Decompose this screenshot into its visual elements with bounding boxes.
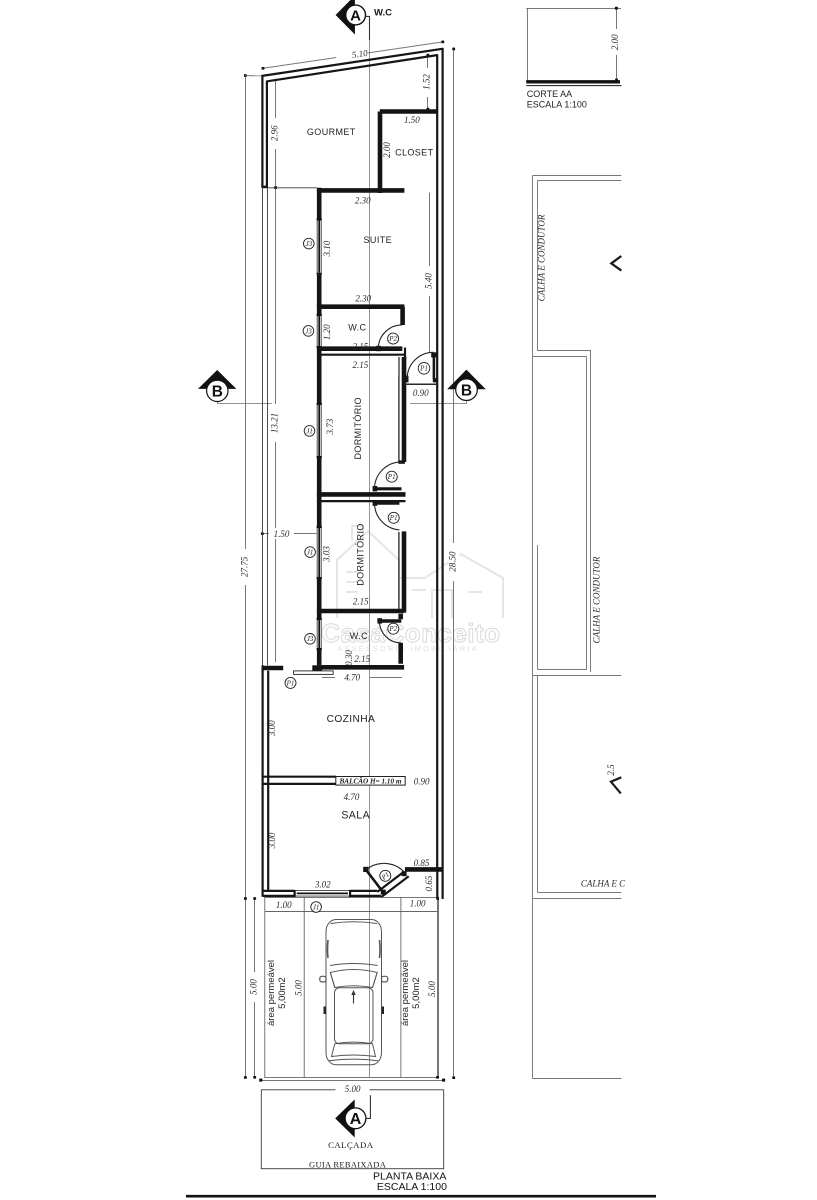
- svg-text:CORTE AA: CORTE AA: [527, 89, 572, 99]
- svg-text:27.75: 27.75: [239, 556, 249, 577]
- svg-text:0.90: 0.90: [414, 776, 430, 786]
- svg-text:GOURMET: GOURMET: [307, 127, 356, 137]
- svg-text:5.00: 5.00: [427, 981, 437, 997]
- svg-text:CALHA E C: CALHA E C: [581, 879, 626, 889]
- svg-text:1.20: 1.20: [322, 324, 332, 340]
- svg-text:J1: J1: [306, 427, 313, 435]
- svg-text:0.30: 0.30: [344, 650, 354, 666]
- svg-text:2.00: 2.00: [382, 142, 392, 158]
- svg-text:5.00: 5.00: [345, 1084, 361, 1094]
- svg-text:1.00: 1.00: [410, 899, 426, 909]
- svg-text:P1: P1: [419, 365, 428, 373]
- svg-text:2.5: 2.5: [606, 764, 616, 776]
- svg-text:5.40: 5.40: [423, 273, 433, 289]
- svg-text:3.00: 3.00: [267, 832, 277, 849]
- svg-text:CLOSET: CLOSET: [395, 147, 434, 157]
- svg-text:5,00m2: 5,00m2: [411, 977, 422, 1009]
- svg-text:ASSESSORIA IMOBILIÁRIA: ASSESSORIA IMOBILIÁRIA: [337, 644, 478, 653]
- svg-text:3.73: 3.73: [325, 418, 335, 435]
- svg-text:5,00m2: 5,00m2: [277, 977, 288, 1009]
- svg-text:B: B: [461, 382, 472, 399]
- svg-text:28.50: 28.50: [447, 551, 457, 572]
- svg-text:W.C: W.C: [348, 322, 366, 332]
- svg-text:0.85: 0.85: [414, 858, 430, 868]
- svg-text:2.15: 2.15: [353, 342, 369, 352]
- svg-text:ESCALA 1:100: ESCALA 1:100: [527, 100, 587, 110]
- svg-text:0.90: 0.90: [413, 388, 429, 398]
- svg-text:1.52: 1.52: [422, 74, 432, 90]
- svg-text:P2: P2: [388, 335, 397, 343]
- svg-text:SUITE: SUITE: [364, 235, 393, 245]
- svg-text:W.C: W.C: [350, 631, 368, 641]
- svg-text:3.10: 3.10: [322, 240, 332, 257]
- svg-text:1.50: 1.50: [274, 529, 290, 539]
- svg-text:2.30: 2.30: [355, 294, 371, 304]
- svg-text:ESCALA 1:100: ESCALA 1:100: [377, 1181, 447, 1193]
- svg-text:P1: P1: [286, 679, 295, 687]
- svg-text:P1: P1: [387, 473, 396, 481]
- svg-text:2.00: 2.00: [610, 34, 620, 50]
- svg-text:área permeável: área permeável: [400, 960, 411, 1026]
- svg-text:CALHA E CONDUTOR: CALHA E CONDUTOR: [592, 556, 602, 643]
- svg-text:P2: P2: [388, 625, 397, 633]
- svg-text:área permeável: área permeável: [266, 960, 277, 1026]
- svg-text:1.50: 1.50: [404, 115, 420, 125]
- svg-text:CALÇADA: CALÇADA: [328, 1140, 374, 1150]
- svg-text:J3: J3: [305, 327, 312, 335]
- svg-text:13.21: 13.21: [269, 413, 279, 433]
- svg-text:J3: J3: [305, 240, 312, 248]
- svg-text:B: B: [212, 383, 223, 400]
- svg-text:3.03: 3.03: [321, 546, 331, 563]
- svg-text:0.65: 0.65: [424, 875, 434, 891]
- svg-text:P1: P1: [389, 514, 398, 522]
- svg-text:BALCÃO H= 1.10 m: BALCÃO H= 1.10 m: [338, 777, 401, 786]
- svg-text:A: A: [350, 1111, 362, 1128]
- svg-text:W.C: W.C: [374, 8, 392, 19]
- svg-text:DORMITÓRIO: DORMITÓRIO: [353, 397, 363, 460]
- svg-text:2.15: 2.15: [353, 360, 369, 370]
- svg-text:J1: J1: [307, 549, 314, 557]
- svg-text:1.00: 1.00: [276, 900, 292, 910]
- svg-text:COZINHA: COZINHA: [327, 714, 376, 725]
- svg-text:2.15: 2.15: [353, 597, 369, 607]
- svg-text:4.70: 4.70: [344, 673, 360, 683]
- svg-text:J1: J1: [313, 903, 320, 911]
- svg-text:5.00: 5.00: [294, 980, 304, 996]
- svg-text:J3: J3: [307, 635, 314, 643]
- svg-text:SALA: SALA: [341, 809, 370, 821]
- svg-text:2.15: 2.15: [354, 654, 370, 664]
- svg-text:GUIA REBAIXADA: GUIA REBAIXADA: [309, 1159, 387, 1169]
- svg-text:DORMITÓRIO: DORMITÓRIO: [355, 523, 365, 586]
- svg-text:A: A: [350, 7, 361, 24]
- svg-text:4.70: 4.70: [344, 792, 360, 802]
- svg-text:2.30: 2.30: [355, 196, 371, 206]
- svg-text:3.00: 3.00: [267, 720, 277, 737]
- svg-text:2.96: 2.96: [269, 125, 279, 141]
- svg-text:CALHA E CONDUTOR: CALHA E CONDUTOR: [536, 214, 546, 301]
- svg-text:3.02: 3.02: [314, 879, 331, 889]
- svg-text:5.00: 5.00: [248, 979, 258, 995]
